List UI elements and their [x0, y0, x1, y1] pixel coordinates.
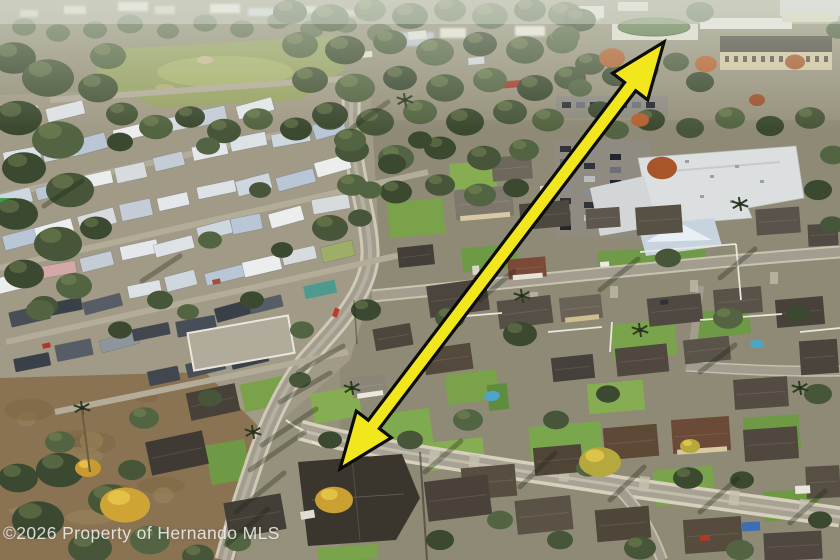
annotation-overlay [0, 0, 840, 560]
aerial-photo: ©2026 Property of Hernando MLS [0, 0, 840, 560]
direction-arrow [340, 42, 664, 469]
